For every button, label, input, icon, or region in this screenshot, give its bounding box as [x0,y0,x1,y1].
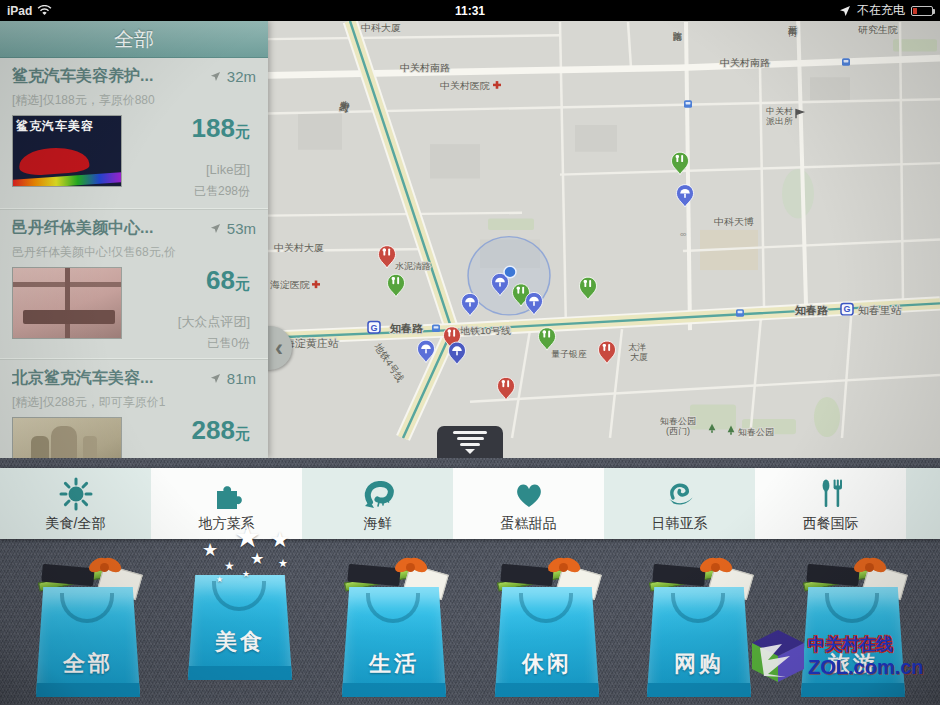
deal-thumbnail [12,417,122,458]
deal-subtitle: [精选]仅288元，即可享原价1 [12,394,256,411]
deal-list-item[interactable]: 鲨克汽车美容养护... 32m [精选]仅188元，享原价880 鲨克汽车美容 … [0,58,268,210]
direction-arrow-icon [210,373,221,384]
map-label: 大厦 [630,352,648,362]
map-label: 太洋 [628,342,646,352]
cutlery-icon [813,475,849,513]
deal-vendor: [大众点评团] [122,313,250,331]
svg-text:∞: ∞ [680,229,686,239]
bag-tab-life[interactable]: 生活 [342,587,446,697]
deal-distance: 32m [227,68,256,85]
deal-list-title: 全部 [114,26,154,53]
device-label: iPad [7,4,32,18]
tab-label: 西餐国际 [803,515,859,533]
bus-stop-icon [736,309,744,317]
deal-vendor: [Like团] [122,161,250,179]
bag-tab-leisure[interactable]: 休闲 [495,587,599,697]
map-label: 中关村南路 [720,57,770,68]
bag-tab-online-shopping[interactable]: 网购 [647,587,751,697]
map-label: 知春公园 [738,427,774,437]
deal-subtitle: [精选]仅188元，享原价880 [12,92,256,109]
map-label: 中关村南路 [400,62,450,73]
tab-label: 海鲜 [364,515,392,533]
deal-list-item[interactable]: 邑丹纤体美颜中心... 53m 邑丹纤体美颜中心!仅售68元,价 68元 [大众… [0,210,268,360]
metro-station-icon [841,303,853,314]
shrimp-icon [360,475,396,513]
bag-label: 休闲 [495,649,599,679]
battery-status-label: 不在充电 [857,2,905,19]
chevron-left-icon: ‹ [275,334,283,362]
zol-cube-logo [752,630,804,682]
deal-sold-count: 已售0份 [122,335,250,352]
heart-icon [511,475,547,513]
tab-cake-dessert[interactable]: 蛋糕甜品 [453,468,604,539]
deal-thumbnail [12,267,122,339]
deal-distance: 53m [227,220,256,237]
thumbnail-caption: 鲨克汽车美容 [16,118,94,135]
map-label: (西门) [666,426,690,436]
zol-site-url: ZOL.com.cn [808,656,924,679]
deal-price: 68元 [122,267,250,297]
map-label: 中关村大厦 [274,242,324,253]
map-label: 知春路 [389,322,423,334]
bag-label: 美食 [188,627,292,657]
map-label: 研究生院 [858,25,898,36]
tab-japan-korea-asia[interactable]: 日韩亚系 [604,468,755,539]
deal-thumbnail: 鲨克汽车美容 [12,115,122,187]
tab-label: 美食/全部 [46,515,106,533]
battery-icon [911,6,933,16]
tab-western-international[interactable]: 西餐国际 [755,468,906,539]
direction-arrow-icon [210,71,221,82]
map-label: 知春路 [794,304,828,316]
bag-tab-all[interactable]: 全部 [36,587,140,697]
puzzle-icon [209,475,245,513]
bus-stop-icon [432,324,440,332]
bag-label: 生活 [342,649,446,679]
current-location-dot [504,266,516,277]
app-screen: iPad 11:31 不在充电 [0,0,940,705]
direction-arrow-icon [210,223,221,234]
deal-distance: 81m [227,370,256,387]
map-label: 知春里站 [858,304,902,316]
zol-watermark: 中关村在线 ZOL.com.cn [752,630,924,682]
bag-label: 网购 [647,649,751,679]
bag-tab-food-selected[interactable]: ★ ★ ★ ★ ★ ★ ★ ★ 美食 [188,575,292,680]
map-label: 中关村医院 [440,80,490,91]
map-label: 中科大厦 [361,22,401,33]
clock: 11:31 [227,4,713,18]
deal-list-panel: 全部 鲨克汽车美容养护... 32m [精选]仅188元，享原价880 鲨克汽车… [0,21,268,458]
bag-label: 全部 [36,649,140,679]
tab-label: 蛋糕甜品 [501,515,557,533]
deal-price: 188元 [122,115,250,145]
tab-partial-next[interactable] [906,468,940,539]
bottom-panel: 美食/全部 地方菜系 [0,458,940,705]
swirl-icon [662,475,698,513]
status-bar: iPad 11:31 不在充电 [0,0,940,21]
sun-icon [58,475,94,513]
wifi-icon [37,5,52,16]
map-label: 地铁10号线 [459,325,511,336]
bus-stop-icon [684,100,692,108]
bus-stop-icon [842,58,850,66]
map-label: 知春公园 [660,416,696,426]
deal-title: 邑丹纤体美颜中心... [12,218,204,239]
map-label: 海淀黄庄站 [284,338,339,350]
deal-sold-count: 已售298份 [122,183,250,200]
map-label: 量子银座 [551,349,587,359]
drawer-pull-handle[interactable] [437,426,503,458]
metro-station-icon [368,322,380,333]
chevron-down-icon [465,449,475,454]
deal-price: 288元 [122,417,250,447]
map-label: 海淀医院 [270,279,310,290]
deal-title: 鲨克汽车美容养护... [12,66,204,87]
stars-decoration: ★ ★ ★ ★ ★ ★ ★ ★ [182,527,302,583]
map-label: 中科天博 [714,216,754,227]
map-label: 水泥清路 [395,261,431,271]
map-label: 中关村 [766,106,793,116]
zol-site-name: 中关村在线 [808,633,924,656]
deal-subtitle: 邑丹纤体美颜中心!仅售68元,价 [12,244,256,261]
deal-title: 北京鲨克汽车美容... [12,368,204,389]
deal-list-item[interactable]: 北京鲨克汽车美容... 81m [精选]仅288元，即可享原价1 288元 [0,360,268,458]
tab-food-all[interactable]: 美食/全部 [0,468,151,539]
map-label: 派出所 [766,116,793,126]
tab-seafood[interactable]: 海鲜 [302,468,453,539]
location-arrow-icon [839,5,851,17]
category-tabbar: 美食/全部 地方菜系 [0,468,940,539]
tab-label: 日韩亚系 [652,515,708,533]
deal-list-header[interactable]: 全部 [0,21,268,58]
